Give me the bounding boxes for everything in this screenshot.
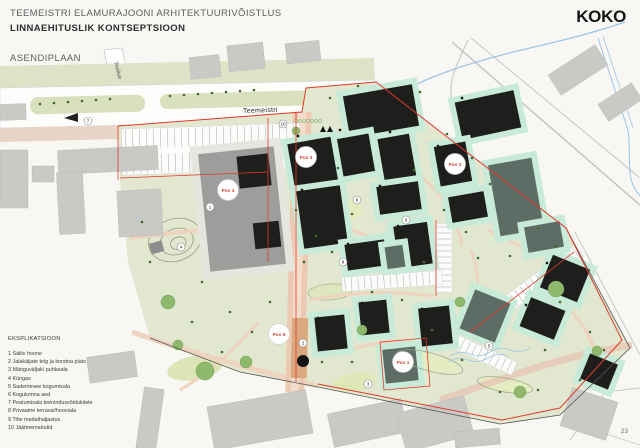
tree-icon xyxy=(477,257,480,260)
svg-text:6: 6 xyxy=(356,198,359,203)
building xyxy=(376,181,421,215)
tree-icon xyxy=(499,391,502,394)
waste-container-icon xyxy=(461,97,463,99)
number-marker-2: 2 xyxy=(299,339,307,347)
tree-icon xyxy=(337,167,340,170)
waste-container-icon xyxy=(297,135,299,137)
legend-item: 10 Jäätmemahutid xyxy=(8,424,93,432)
number-marker-8: 8 xyxy=(339,258,347,266)
tree-icon xyxy=(321,361,324,364)
tree-icon xyxy=(413,169,416,172)
building xyxy=(314,315,347,352)
site-plan-map: Teemeistri Teelise Pos 1 Pos 2 Pos 3 Pos… xyxy=(0,0,640,448)
tree-icon xyxy=(559,301,562,304)
koko-logo: KOKO xyxy=(576,7,626,27)
tree-icon xyxy=(315,235,318,238)
tree-icon xyxy=(537,389,540,392)
tree-icon xyxy=(555,245,558,248)
number-marker-9: 9 xyxy=(402,216,410,224)
tree-icon xyxy=(431,329,434,332)
legend-item: 1 Säiliv hoone xyxy=(8,350,93,358)
tree-icon xyxy=(603,349,606,352)
tree-icon xyxy=(251,331,254,334)
legend-item: 8 Privaatne terrassi/hooviala xyxy=(8,407,93,415)
building xyxy=(0,150,28,208)
building xyxy=(56,171,85,234)
tree-icon xyxy=(201,281,204,284)
pos-marker-4: Pos 4 xyxy=(218,180,239,201)
tree-icon xyxy=(67,101,70,104)
title-block: TEEMEISTRI ELAMURAJOONI ARHITEKTUURIVÕIS… xyxy=(10,8,282,64)
building xyxy=(296,185,348,249)
svg-text:5: 5 xyxy=(488,344,491,349)
svg-text:4: 4 xyxy=(180,245,183,250)
svg-text:7: 7 xyxy=(87,119,90,124)
number-marker-7: 7 xyxy=(84,117,92,125)
tree-icon xyxy=(149,261,152,264)
tree-icon xyxy=(191,321,194,324)
number-marker-10: 10 xyxy=(279,120,287,128)
building xyxy=(253,221,282,250)
number-marker-3: 3 xyxy=(364,380,372,388)
waste-container-icon xyxy=(317,317,319,319)
tree-canopy-icon xyxy=(455,297,465,307)
svg-text:Pos 1: Pos 1 xyxy=(397,360,410,366)
tree-icon xyxy=(221,351,224,354)
legend: EKSPLIKATSIOON 1 Säiliv hoone 2 Jalakäij… xyxy=(8,336,93,432)
legend-title: EKSPLIKATSIOON xyxy=(8,336,93,342)
building xyxy=(285,40,321,63)
tree-icon xyxy=(589,331,592,334)
plan-sheet: Teemeistri Teelise Pos 1 Pos 2 Pos 3 Pos… xyxy=(0,0,640,448)
tree-canopy-icon xyxy=(240,356,252,368)
waste-container-icon xyxy=(389,131,391,133)
tree-icon xyxy=(53,102,56,105)
tree-icon xyxy=(109,98,112,101)
tree-icon xyxy=(183,94,186,97)
tree-icon xyxy=(269,301,272,304)
tree-icon xyxy=(401,299,404,302)
tree-canopy-icon xyxy=(592,346,602,356)
legend-item: 5 Sademevee kogumisala xyxy=(8,383,93,391)
tree-icon xyxy=(489,183,492,186)
pos-marker-3: Pos 3 xyxy=(296,147,317,168)
tree-icon xyxy=(211,92,214,95)
tree-icon xyxy=(81,100,84,103)
tree-icon xyxy=(253,89,256,92)
waste-container-icon xyxy=(339,129,341,131)
tree-icon xyxy=(443,209,446,212)
tree-icon xyxy=(423,261,426,264)
waste-container-icon xyxy=(525,304,527,306)
tree-icon xyxy=(169,95,172,98)
waste-container-icon xyxy=(347,243,349,245)
tree-canopy-icon xyxy=(196,362,214,380)
svg-text:Pos 3: Pos 3 xyxy=(300,155,313,161)
building xyxy=(337,134,375,177)
building xyxy=(236,153,271,188)
tree-icon xyxy=(537,227,540,230)
building xyxy=(57,145,158,174)
svg-text:10: 10 xyxy=(280,122,286,127)
building xyxy=(0,104,26,121)
competition-title: TEEMEISTRI ELAMURAJOONI ARHITEKTUURIVÕIS… xyxy=(10,8,282,19)
legend-item: 2 Jalakäijate telg ja korstna plats xyxy=(8,358,93,366)
street-label-main: Teemeistri xyxy=(243,107,278,115)
waste-container-icon xyxy=(397,225,399,227)
tree-icon xyxy=(579,379,582,382)
tree-icon xyxy=(446,133,449,136)
building xyxy=(32,166,54,182)
tree-icon xyxy=(509,255,512,258)
legend-item: 4 Küngas xyxy=(8,375,93,383)
pos-marker-2: Pos 2 xyxy=(445,154,466,175)
tree-icon xyxy=(544,349,547,352)
svg-text:Pos 2: Pos 2 xyxy=(449,162,462,168)
legend-item: 6 Kogukonna aed xyxy=(8,391,93,399)
waste-container-icon xyxy=(301,189,303,191)
waste-container-icon xyxy=(437,145,439,147)
waste-container-icon xyxy=(379,185,381,187)
number-marker-1: 1 xyxy=(206,203,214,211)
svg-text:8: 8 xyxy=(342,260,345,265)
chimney-plaza xyxy=(291,318,309,378)
tree-canopy-icon xyxy=(161,295,175,309)
number-marker-4: 4 xyxy=(177,243,185,251)
tree-icon xyxy=(371,291,374,294)
number-marker-6: 6 xyxy=(353,196,361,204)
waste-container-icon xyxy=(361,302,363,304)
tree-icon xyxy=(197,93,200,96)
tree-icon xyxy=(225,91,228,94)
chimney-dot xyxy=(297,355,309,367)
svg-text:Pos 5: Pos 5 xyxy=(273,332,286,338)
waste-container-icon xyxy=(421,308,423,310)
tree-icon xyxy=(465,231,468,234)
legend-item: 7 Peatumisala teenindussõidukitele xyxy=(8,399,93,407)
tree-canopy-icon xyxy=(514,386,526,398)
svg-text:2: 2 xyxy=(302,341,305,346)
waste-container-icon xyxy=(546,262,548,264)
tree-icon xyxy=(303,261,306,264)
tree-icon xyxy=(329,97,332,100)
tree-icon xyxy=(351,361,354,364)
tree-canopy-icon xyxy=(548,281,564,297)
page-number: 23 xyxy=(621,428,628,435)
tree-icon xyxy=(229,311,232,314)
concept-title: LINNAEHITUSLIK KONTSEPTSIOON xyxy=(10,23,282,34)
svg-text:Pos 4: Pos 4 xyxy=(222,188,235,194)
tree-icon xyxy=(239,90,242,93)
pos-marker-1: Pos 1 xyxy=(393,352,414,373)
number-marker-5: 5 xyxy=(485,342,493,350)
tree-icon xyxy=(39,103,42,106)
legend-item: 3 Mänguväljak/ puhkeala xyxy=(8,366,93,374)
building xyxy=(385,245,406,269)
tree-icon xyxy=(351,213,354,216)
building xyxy=(418,305,453,346)
tree-icon xyxy=(357,85,360,88)
svg-text:9: 9 xyxy=(405,218,408,223)
legend-item: 9 Tihe madalhaljastus xyxy=(8,416,93,424)
building xyxy=(117,189,163,237)
tree-icon xyxy=(461,359,464,362)
svg-text:1: 1 xyxy=(209,205,212,210)
tree-icon xyxy=(95,99,98,102)
tree-icon xyxy=(141,221,144,224)
pos-marker-5: Pos 5 xyxy=(269,324,290,345)
drawing-title: ASENDIPLAAN xyxy=(10,53,282,64)
tree-icon xyxy=(331,251,334,254)
svg-text:3: 3 xyxy=(367,382,370,387)
tree-icon xyxy=(419,91,422,94)
tree-canopy-icon xyxy=(357,325,367,335)
